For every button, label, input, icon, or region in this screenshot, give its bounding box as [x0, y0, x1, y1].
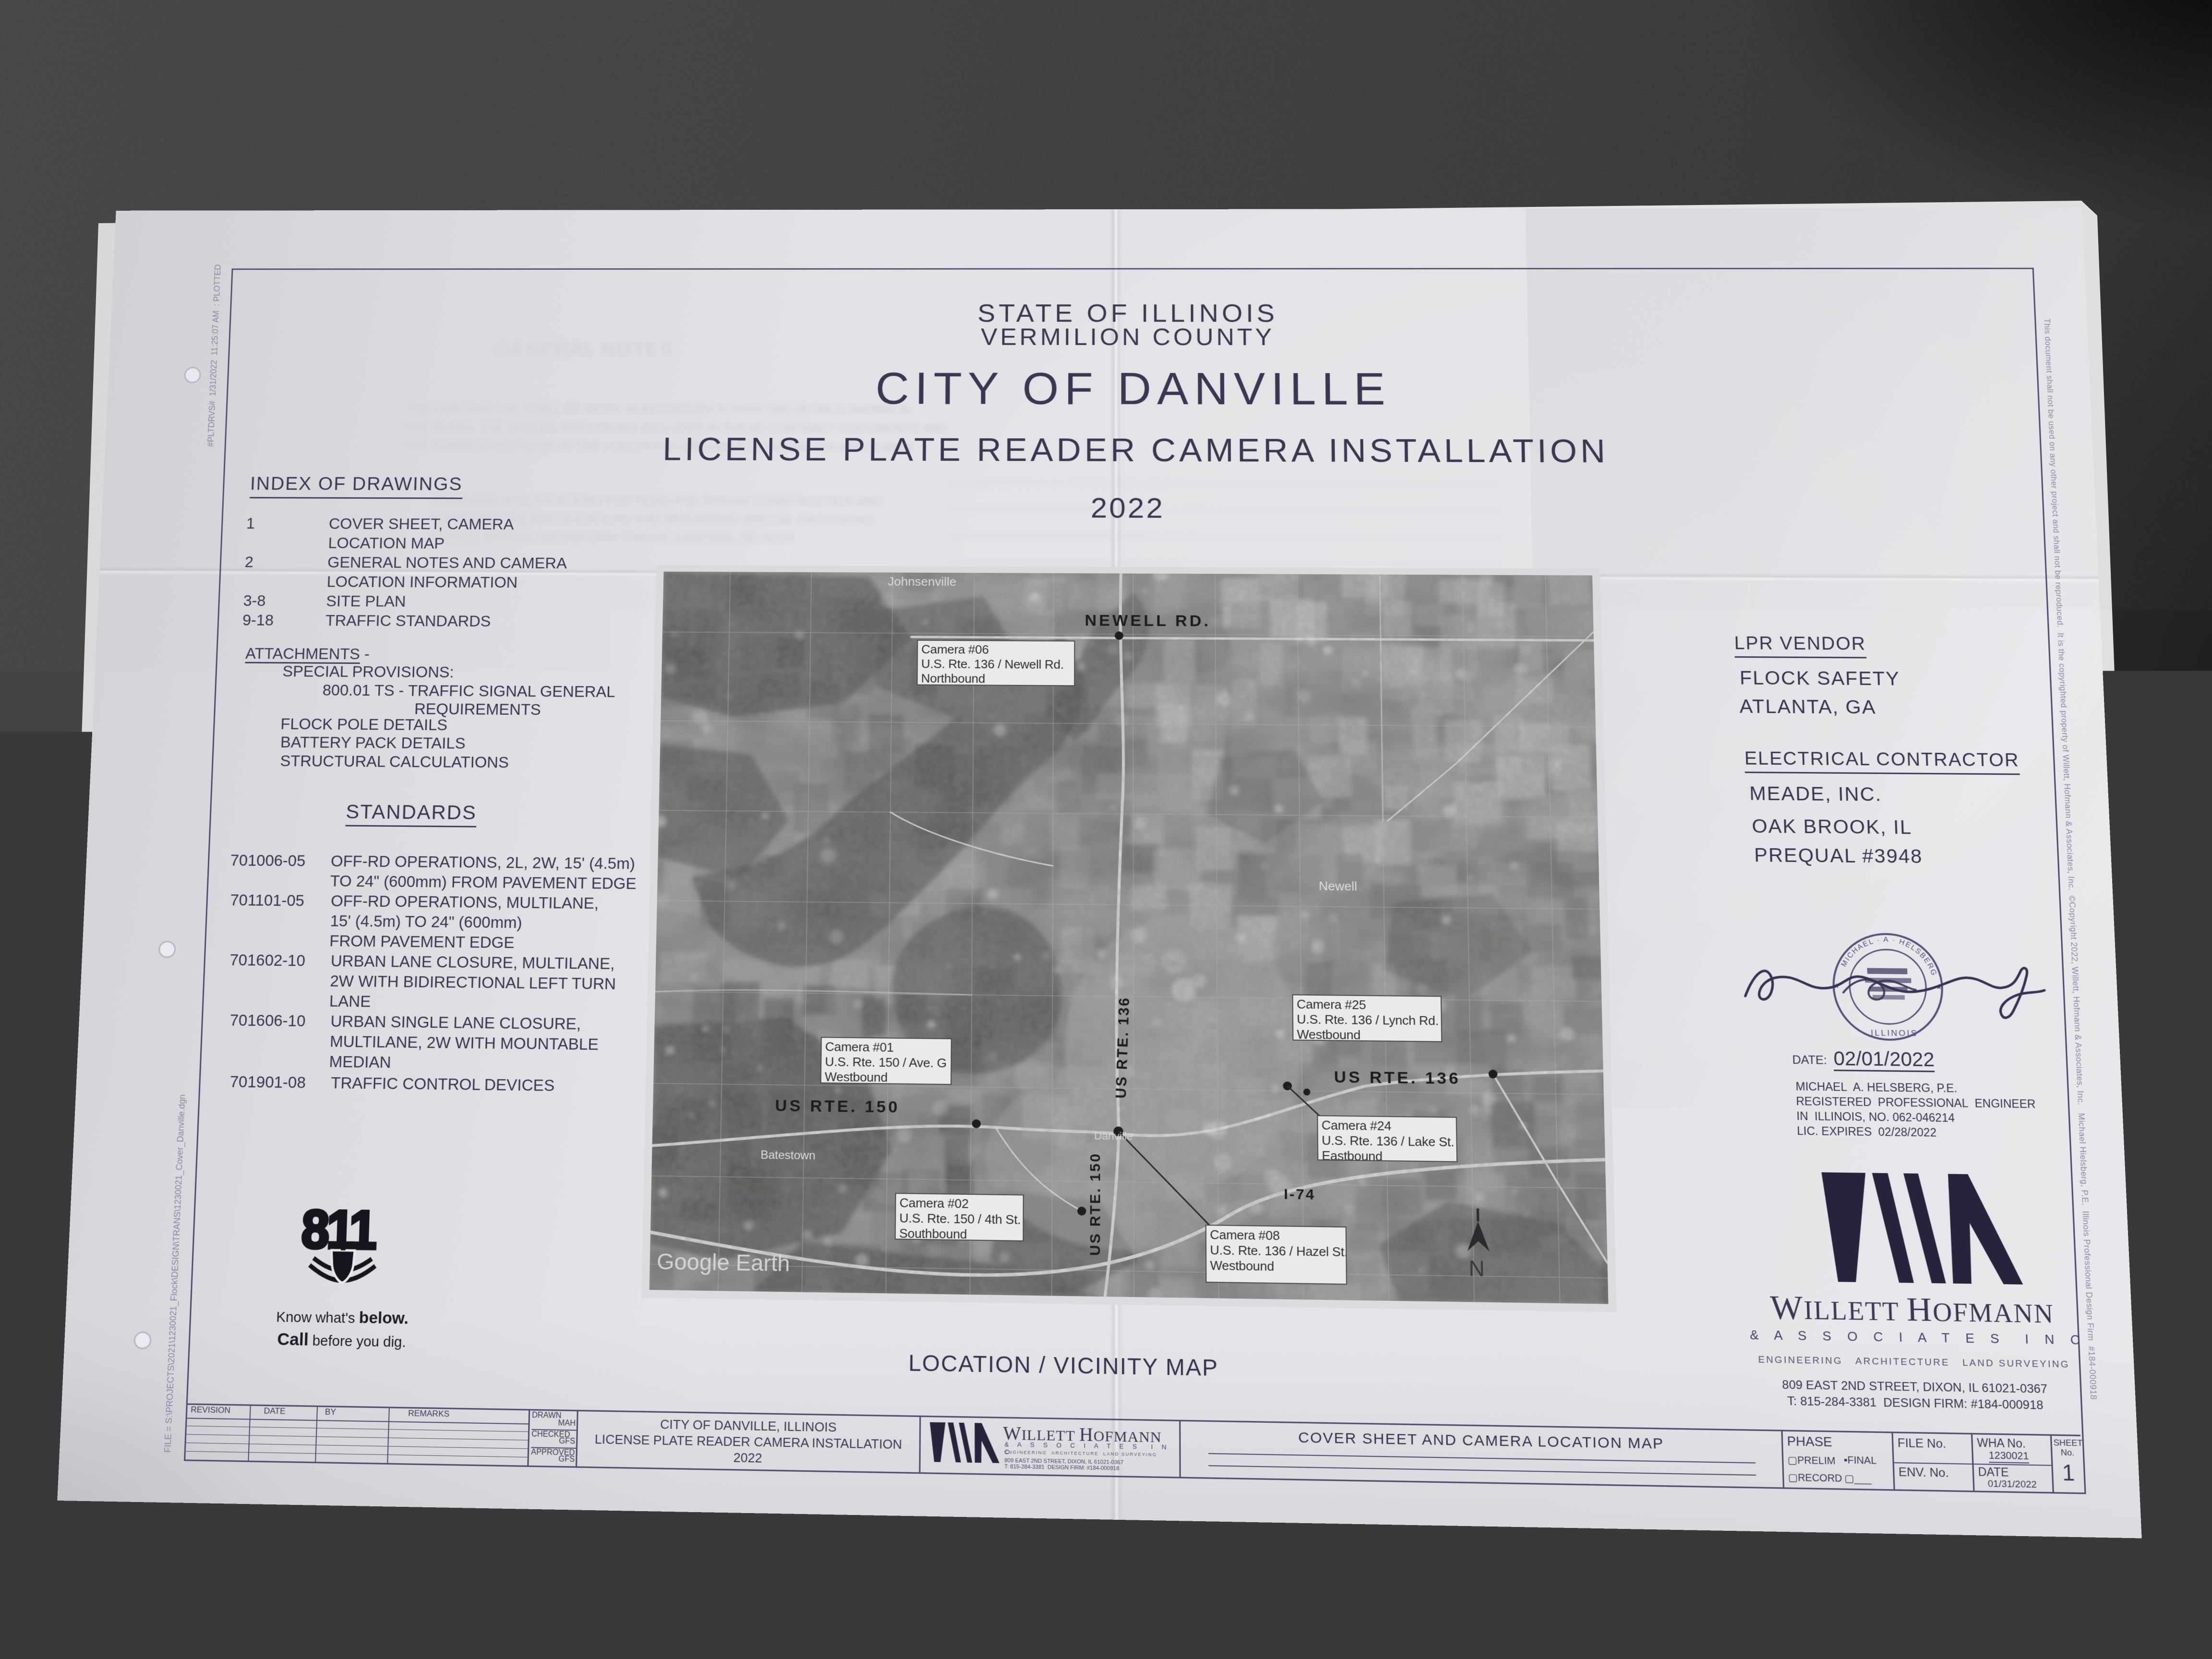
- svg-text:US RTE. 150: US RTE. 150: [1087, 1152, 1103, 1256]
- svg-text:Batestown: Batestown: [760, 1148, 816, 1162]
- svg-text:I-74: I-74: [1284, 1186, 1315, 1202]
- svg-text:ILLINOIS: ILLINOIS: [1871, 1029, 1918, 1038]
- svg-text:US RTE. 136: US RTE. 136: [1113, 996, 1132, 1099]
- svg-text:Newell: Newell: [1319, 879, 1357, 894]
- svg-text:US RTE. 150: US RTE. 150: [775, 1096, 900, 1116]
- svg-text:NEWELL RD.: NEWELL RD.: [1085, 611, 1211, 630]
- svg-text:N: N: [1468, 1256, 1485, 1281]
- svg-text:Johnsenville: Johnsenville: [888, 575, 956, 589]
- svg-text:Danville: Danville: [1094, 1130, 1133, 1142]
- svg-text:Google Earth: Google Earth: [657, 1249, 790, 1276]
- svg-text:US RTE. 136: US RTE. 136: [1334, 1068, 1461, 1088]
